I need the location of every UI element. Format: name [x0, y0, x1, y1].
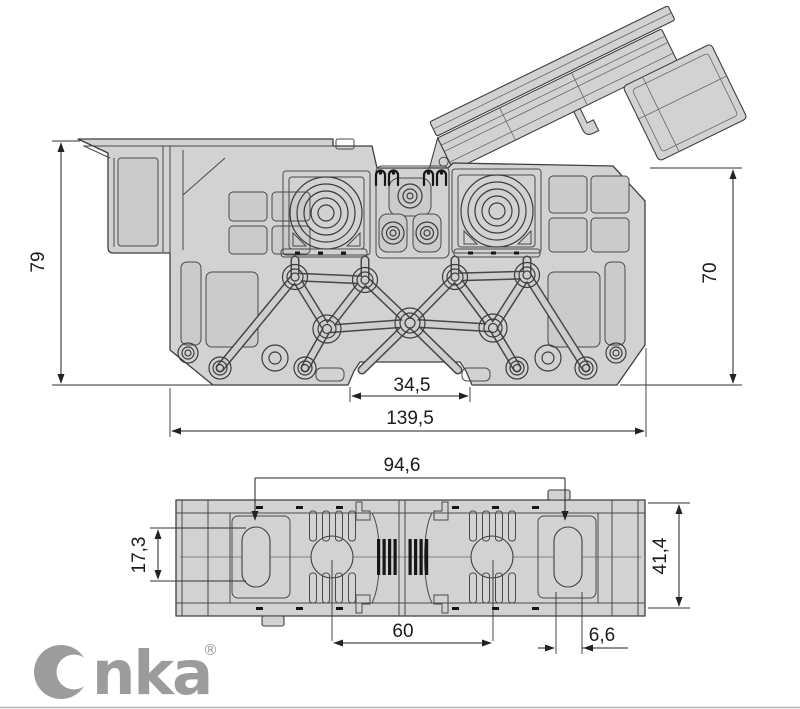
dim-label-79: 79: [28, 251, 49, 272]
dim-label-6-6: 6,6: [589, 625, 615, 646]
dimension-rail-notch: 34,5: [350, 375, 470, 402]
dim-label-139-5: 139,5: [386, 408, 434, 429]
registered-trademark-icon: ®: [203, 641, 218, 659]
dim-label-60: 60: [392, 621, 413, 642]
logo-wordmark: nka: [92, 638, 211, 709]
mounting-slot-left: [242, 527, 270, 587]
dim-label-17-3: 17,3: [129, 537, 150, 574]
technical-drawing-page: 79 70 34,5 139,5: [0, 0, 800, 709]
plan-view: [176, 490, 645, 626]
dim-label-34-5: 34,5: [394, 375, 431, 396]
top-latch-tab: [548, 490, 570, 500]
brand-logo: nka ®: [34, 638, 218, 709]
bottom-latch-tab: [262, 616, 284, 626]
mounting-slot-right: [554, 527, 582, 587]
terminal-block-technical-drawing: 79 70 34,5 139,5: [0, 0, 800, 709]
dim-label-70: 70: [700, 262, 721, 283]
front-view: [78, 0, 747, 385]
dim-label-94-6: 94,6: [384, 455, 421, 476]
dim-label-41-4: 41,4: [650, 537, 671, 574]
cover-latch-hook: [574, 105, 599, 136]
dimension-overall-depth: 41,4: [648, 503, 690, 608]
